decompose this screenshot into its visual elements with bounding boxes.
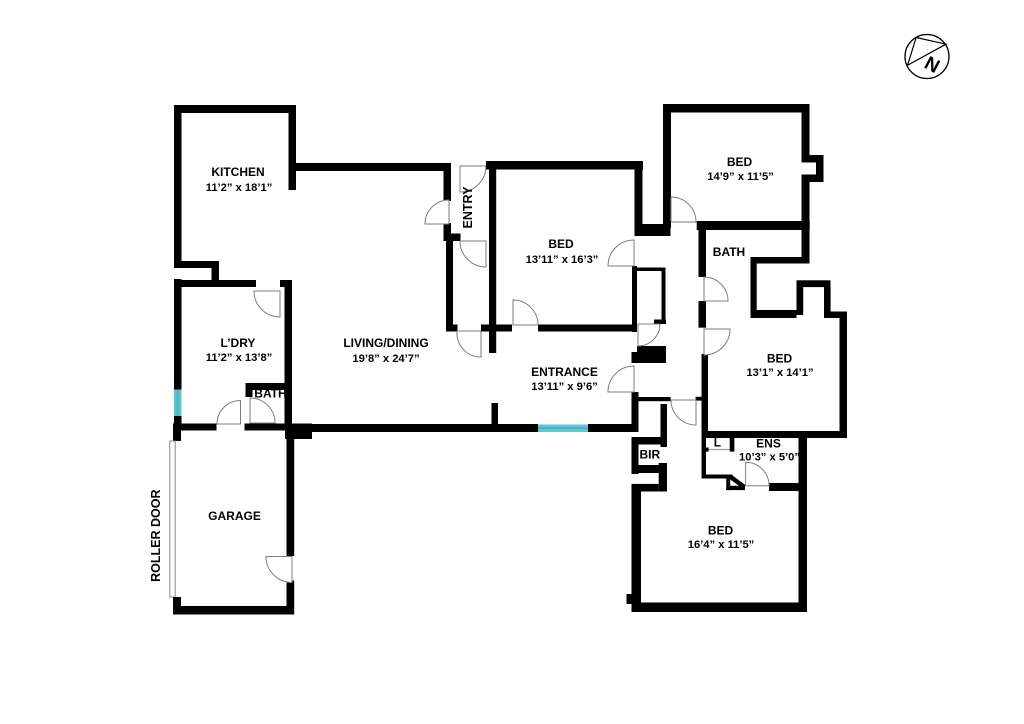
svg-text:13’11” x 16’3”: 13’11” x 16’3” (526, 254, 599, 266)
svg-text:11’2” x 18’1”: 11’2” x 18’1” (206, 182, 273, 194)
svg-text:19’8” x 24’7”: 19’8” x 24’7” (352, 353, 419, 365)
svg-text:BED: BED (708, 524, 734, 538)
svg-text:ROLLER DOOR: ROLLER DOOR (149, 490, 163, 582)
svg-text:L’DRY: L’DRY (221, 336, 256, 350)
svg-text:10’3” x 5’0”: 10’3” x 5’0” (739, 452, 800, 464)
svg-text:13’11” x 9’6”: 13’11” x 9’6” (531, 381, 598, 393)
svg-text:11’2” x 13’8”: 11’2” x 13’8” (206, 352, 273, 364)
svg-text:ENTRANCE: ENTRANCE (531, 365, 598, 379)
svg-text:14’9” x 11’5”: 14’9” x 11’5” (707, 171, 774, 183)
svg-text:BED: BED (727, 155, 753, 169)
svg-text:16’4” x 11’5”: 16’4” x 11’5” (688, 539, 755, 551)
svg-text:ENS: ENS (756, 437, 781, 451)
svg-text:BATH: BATH (713, 245, 745, 259)
svg-text:BED: BED (767, 352, 793, 366)
svg-text:BIR: BIR (639, 448, 660, 462)
svg-text:ENTRY: ENTRY (461, 186, 475, 229)
svg-text:BATH: BATH (254, 387, 286, 401)
svg-text:L: L (714, 436, 721, 450)
svg-text:GARAGE: GARAGE (208, 509, 261, 523)
svg-text:KITCHEN: KITCHEN (211, 165, 264, 179)
svg-text:LIVING/DINING: LIVING/DINING (343, 336, 428, 350)
svg-text:13’1” x 14’1”: 13’1” x 14’1” (746, 367, 813, 379)
svg-text:BED: BED (548, 237, 574, 251)
